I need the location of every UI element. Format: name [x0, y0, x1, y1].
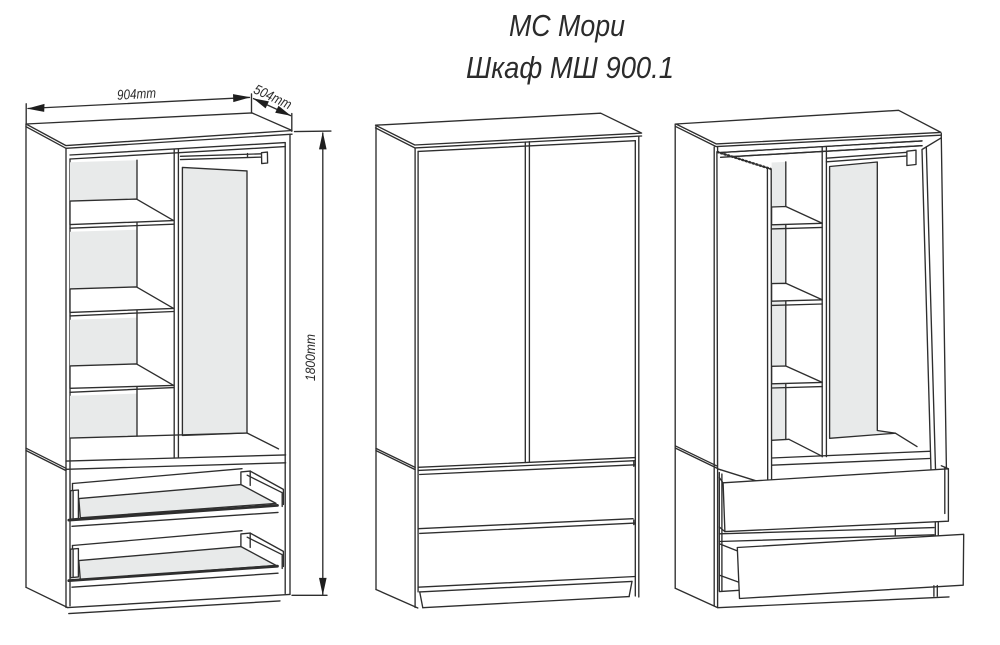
- svg-text:МС Мори: МС Мори: [509, 8, 625, 43]
- svg-text:904mm: 904mm: [117, 85, 157, 103]
- svg-text:1800mm: 1800mm: [302, 334, 318, 381]
- svg-text:Шкаф МШ 900.1: Шкаф МШ 900.1: [466, 50, 674, 85]
